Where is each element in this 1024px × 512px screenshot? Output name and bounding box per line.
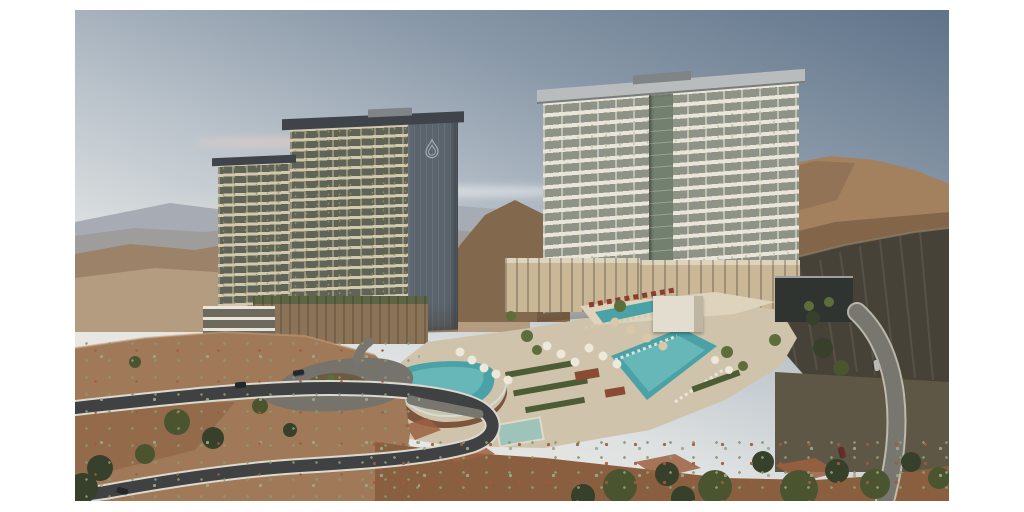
desert-shrubs: [360, 435, 949, 501]
resort-rendering-photo: [75, 10, 949, 501]
page: [0, 0, 1024, 512]
car: [235, 382, 246, 388]
